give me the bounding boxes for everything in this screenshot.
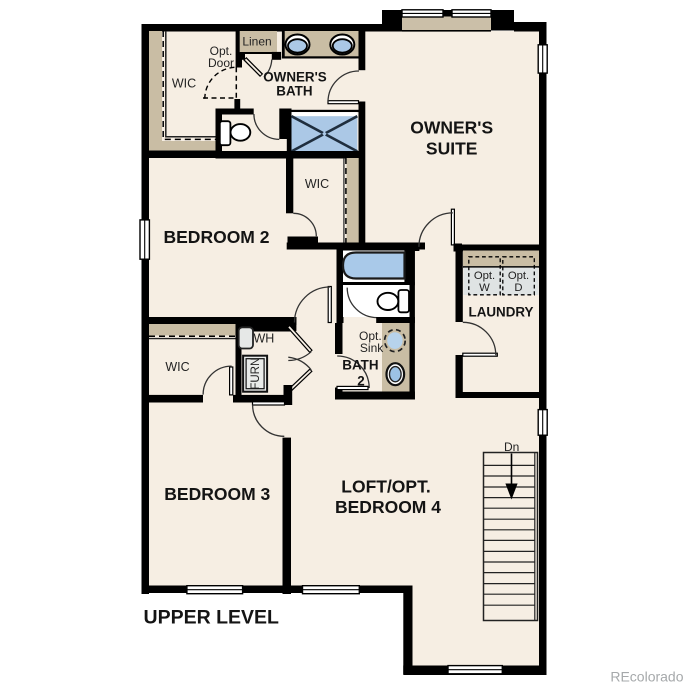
svg-text:WIC: WIC — [172, 77, 196, 91]
svg-text:Sink: Sink — [360, 341, 384, 355]
svg-text:LAUNDRY: LAUNDRY — [469, 305, 534, 320]
svg-text:Linen: Linen — [242, 34, 271, 48]
svg-text:LOFT/OPT.: LOFT/OPT. — [341, 476, 430, 496]
svg-text:OWNER'S: OWNER'S — [263, 69, 327, 84]
svg-text:BEDROOM 3: BEDROOM 3 — [164, 484, 270, 504]
svg-text:BATH: BATH — [342, 357, 378, 372]
svg-text:OWNER'S: OWNER'S — [410, 118, 493, 138]
svg-text:Opt.: Opt. — [508, 270, 529, 282]
svg-text:Door: Door — [208, 56, 234, 70]
svg-text:W: W — [479, 282, 490, 294]
svg-text:WIC: WIC — [165, 360, 189, 374]
svg-text:FURN: FURN — [250, 358, 262, 390]
svg-text:Dn: Dn — [504, 440, 519, 454]
svg-text:SUITE: SUITE — [426, 139, 478, 159]
svg-text:2: 2 — [357, 374, 364, 389]
svg-text:BATH: BATH — [276, 83, 312, 98]
svg-text:D: D — [514, 282, 522, 294]
svg-text:UPPER LEVEL: UPPER LEVEL — [144, 606, 280, 628]
svg-text:REcolorado: REcolorado — [610, 669, 683, 685]
svg-text:Opt.: Opt. — [474, 270, 495, 282]
svg-text:WIC: WIC — [305, 177, 329, 191]
svg-text:BEDROOM 4: BEDROOM 4 — [335, 497, 441, 517]
svg-text:WH: WH — [253, 332, 274, 346]
svg-text:BEDROOM 2: BEDROOM 2 — [164, 227, 270, 247]
